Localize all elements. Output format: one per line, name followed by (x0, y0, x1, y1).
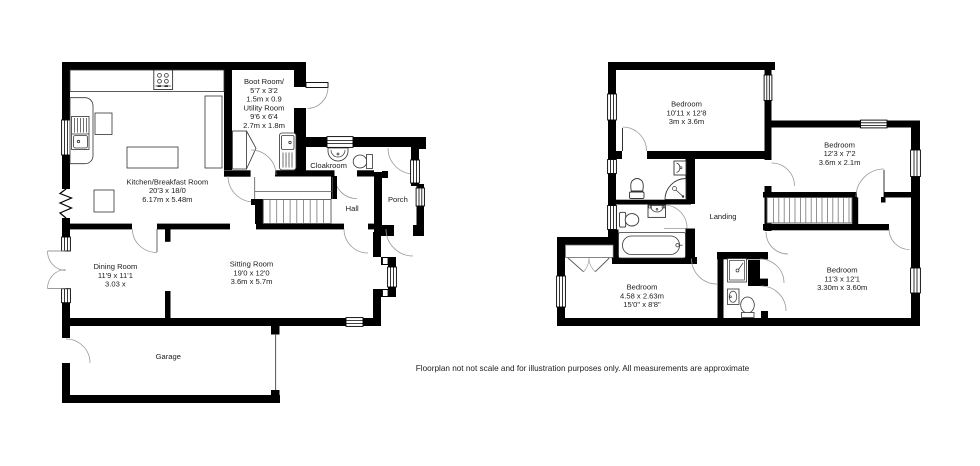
svg-text:4.58 x 2.63m: 4.58 x 2.63m (620, 291, 664, 300)
svg-text:Bedroom: Bedroom (627, 283, 658, 292)
svg-text:10'11 x 12'8: 10'11 x 12'8 (667, 108, 707, 117)
svg-text:20'3 x 18/0: 20'3 x 18/0 (149, 186, 186, 195)
svg-text:1.5m x 0.9: 1.5m x 0.9 (246, 95, 281, 104)
svg-text:Porch: Porch (388, 195, 408, 204)
svg-text:11'3 x 12'1: 11'3 x 12'1 (824, 274, 860, 283)
svg-text:3.30m x 3.60m: 3.30m x 3.60m (817, 283, 867, 292)
svg-text:15'0" x 8'8": 15'0" x 8'8" (623, 300, 661, 309)
svg-text:3.6m x 5.7m: 3.6m x 5.7m (231, 277, 273, 286)
svg-text:3.6m x 2.1m: 3.6m x 2.1m (819, 158, 861, 167)
svg-text:Bedroom: Bedroom (827, 266, 858, 275)
svg-text:Cloakroom: Cloakroom (310, 161, 347, 170)
svg-text:Garage: Garage (156, 352, 181, 361)
svg-text:Dining Room: Dining Room (93, 262, 137, 271)
svg-text:19'0 x 12'0: 19'0 x 12'0 (233, 268, 269, 277)
svg-text:Landing: Landing (709, 212, 736, 221)
svg-text:6.17m x 5.48m: 6.17m x 5.48m (142, 195, 192, 204)
svg-text:Boot Room/: Boot Room/ (244, 77, 285, 86)
svg-text:3.03 x: 3.03 x (105, 280, 126, 289)
svg-text:3m x 3.6m: 3m x 3.6m (669, 117, 704, 126)
svg-text:Kitchen/Breakfast Room: Kitchen/Breakfast Room (126, 177, 208, 186)
svg-text:9'6 x 6'4: 9'6 x 6'4 (250, 112, 278, 121)
svg-text:Bedroom: Bedroom (824, 140, 855, 149)
svg-text:11'9 x 11'1: 11'9 x 11'1 (98, 271, 133, 280)
svg-text:12'3 x 7'2: 12'3 x 7'2 (824, 149, 856, 158)
svg-text:2.7m x 1.8m: 2.7m x 1.8m (243, 121, 285, 130)
svg-text:Sitting Room: Sitting Room (230, 260, 273, 269)
svg-text:Bedroom: Bedroom (671, 100, 702, 109)
svg-text:5'7 x 3'2: 5'7 x 3'2 (250, 86, 278, 95)
svg-text:Utility Room: Utility Room (244, 103, 285, 112)
svg-text:Hall: Hall (346, 204, 359, 213)
svg-text:Floorplan not not scale and fo: Floorplan not not scale and for illustra… (416, 364, 750, 373)
